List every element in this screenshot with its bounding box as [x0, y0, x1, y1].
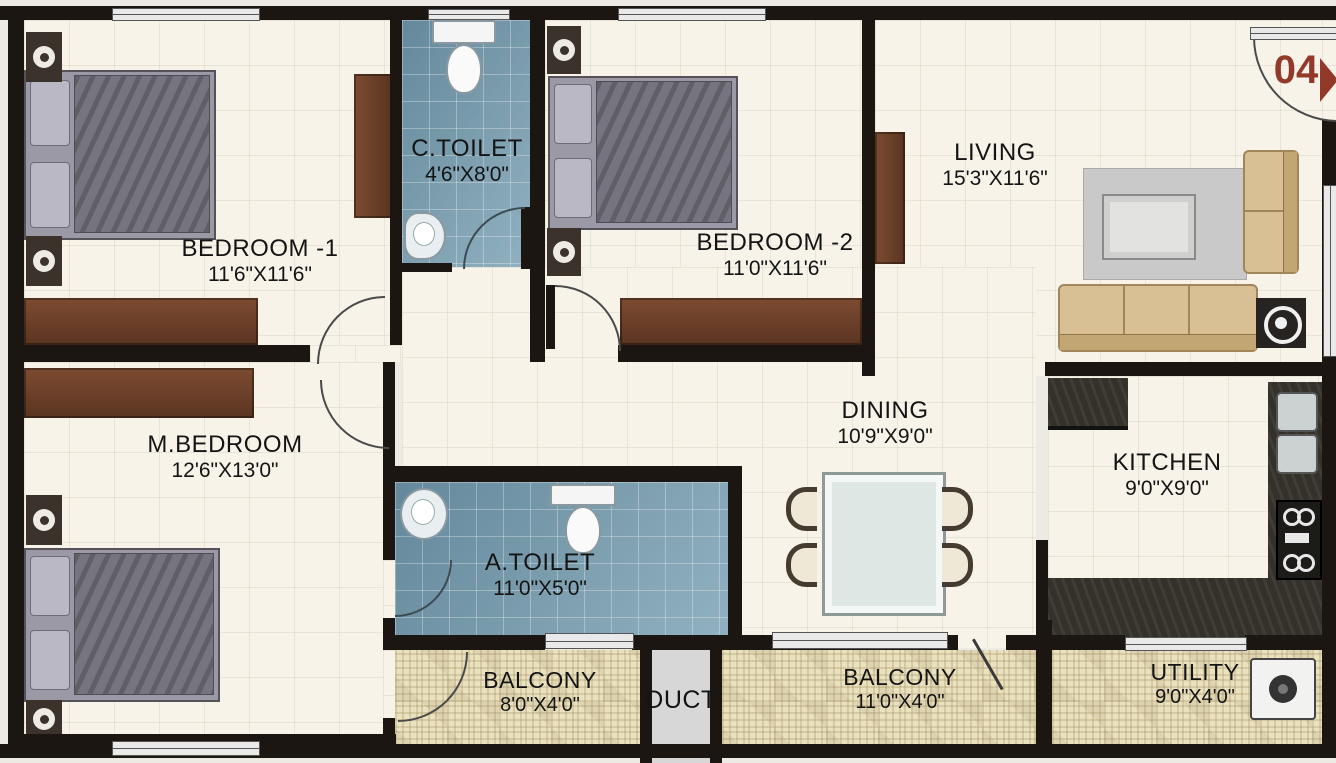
nightstand [26, 495, 62, 545]
toilet [432, 20, 496, 96]
dining-table [822, 472, 946, 616]
window [1125, 637, 1247, 651]
wash-basin [404, 212, 446, 260]
wall [383, 618, 395, 650]
wall [8, 345, 310, 362]
sofa [1058, 284, 1258, 352]
unit-number: 04 [1266, 48, 1326, 93]
window [112, 8, 260, 21]
wall [1245, 635, 1322, 650]
dresser [24, 298, 258, 345]
wall [1036, 620, 1052, 744]
nightstand [26, 32, 62, 82]
nightstand [547, 26, 581, 74]
nightstand [26, 236, 62, 286]
pedestal-fan [1256, 298, 1306, 348]
window [618, 8, 766, 21]
toilet [550, 484, 616, 556]
window [1323, 185, 1336, 357]
room-label-kitchen: KITCHEN 9'0"X9'0" [1082, 450, 1252, 500]
room-label-utility: UTILITY 9'0"X4'0" [1110, 660, 1280, 708]
wardrobe [24, 368, 254, 418]
window [772, 632, 948, 649]
room-label-bedroom2: BEDROOM -2 11'0"X11'6" [660, 230, 890, 280]
wall [383, 718, 395, 744]
room-label-balcony2: BALCONY 11'0"X4'0" [795, 665, 1005, 713]
wall [530, 20, 545, 362]
loveseat-sofa [1243, 150, 1299, 274]
door-leaf [546, 285, 555, 349]
dresser [620, 298, 862, 345]
wall [862, 20, 875, 376]
window [545, 633, 634, 649]
room-label-balcony1: BALCONY 8'0"X4'0" [435, 668, 645, 716]
refrigerator [1048, 378, 1128, 430]
nightstand [547, 228, 581, 276]
dining-chair [786, 487, 817, 531]
room-label-bedroom1: BEDROOM -1 11'6"X11'6" [140, 236, 380, 286]
wall [395, 635, 545, 650]
stove [1276, 500, 1322, 580]
wall [8, 6, 24, 750]
tv-table [1102, 194, 1196, 260]
wall [728, 466, 742, 648]
bed [24, 70, 216, 240]
dining-chair [786, 543, 817, 587]
window [428, 9, 510, 20]
room-label-mbedroom: M.BEDROOM 12'6"X13'0" [105, 432, 345, 482]
nightstand [26, 700, 62, 738]
wall [618, 345, 862, 362]
wall [395, 466, 740, 482]
window [112, 741, 260, 756]
wall [402, 263, 452, 272]
room-label-atoilet: A.TOILET 11'0"X5'0" [445, 550, 635, 600]
room-label-ctoilet: C.TOILET 4'6"X8'0" [394, 136, 540, 186]
wall [1006, 635, 1036, 650]
floor-plan: 04 BEDROOM -1 11'6"X11'6" C.TOILET 4'6"X… [0, 0, 1336, 763]
room-label-dining: DINING 10'9"X9'0" [790, 398, 980, 448]
wall [1045, 362, 1322, 376]
bed [548, 76, 738, 230]
entrance-threshold [1250, 27, 1336, 40]
kitchen-sink [1276, 392, 1316, 472]
door-gap-balcony1 [383, 650, 395, 718]
room-label-duct: DUCT [644, 686, 718, 714]
room-label-living: LIVING 15'3"X11'6" [905, 140, 1085, 190]
wash-basin [400, 488, 448, 540]
bed [24, 548, 220, 702]
wall [1052, 635, 1125, 650]
door-gap-atoilet [383, 560, 395, 618]
wardrobe [354, 74, 392, 218]
